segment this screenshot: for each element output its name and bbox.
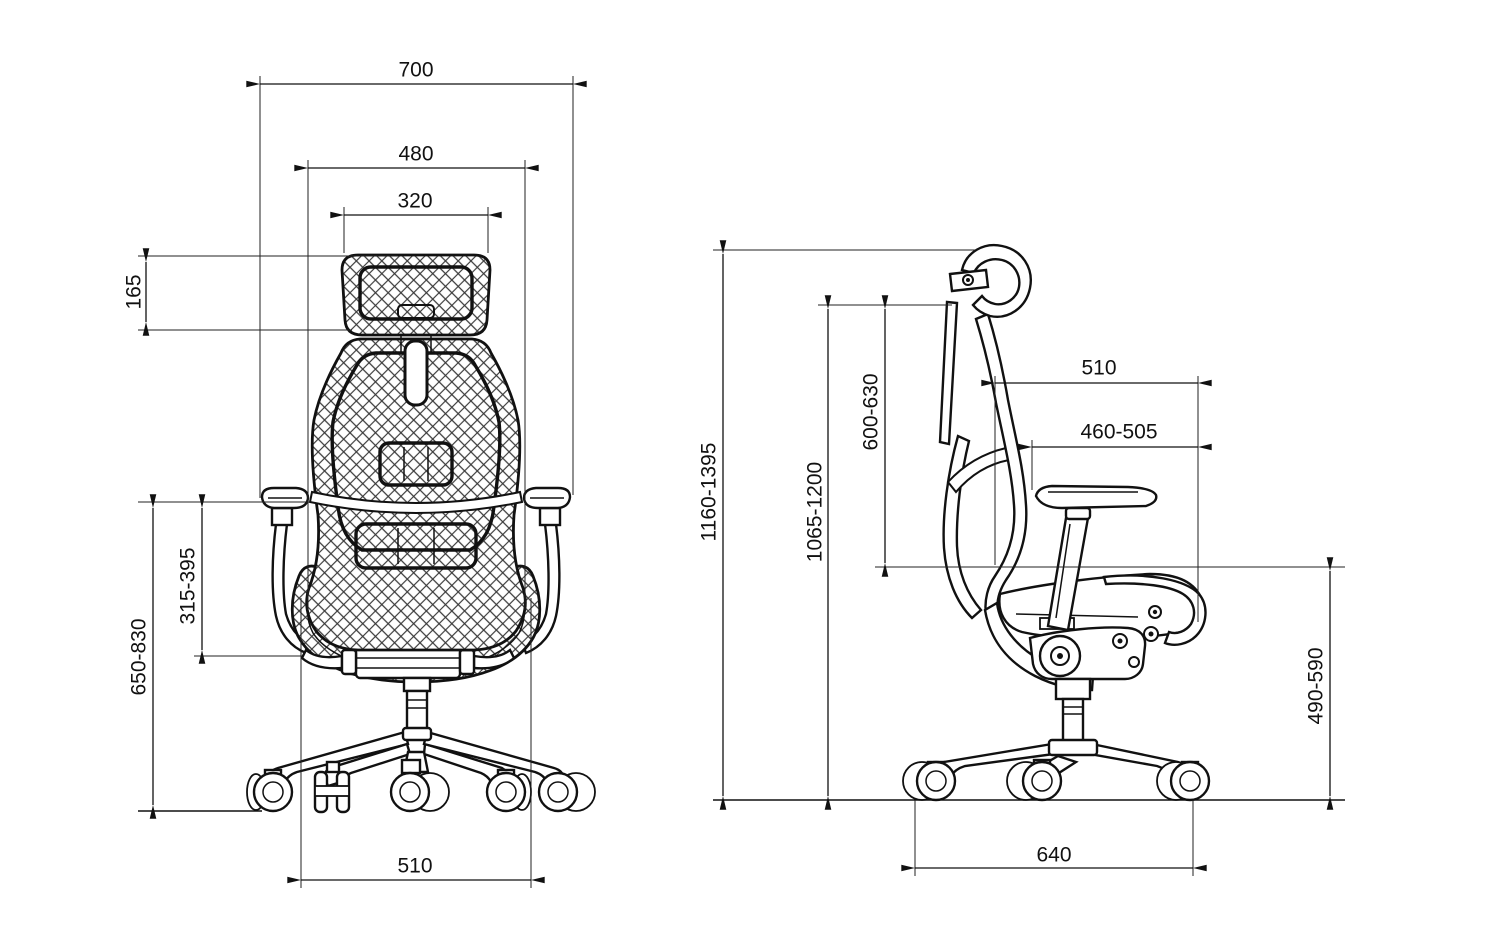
caster [487,770,531,811]
dim-seat-height-label: 490-590 [1306,644,1327,727]
dim-armrest-seat-label: 315-395 [178,544,199,627]
caster [903,762,955,800]
dim-460-505 [1032,440,1198,490]
dim-headrest-width-label: 320 [394,191,435,212]
side-view-drawing [903,245,1209,800]
back-view-drawing [247,255,595,812]
chair-dimension-drawing: 700 480 320 165 315-395 650-830 510 1160… [0,0,1500,938]
dim-backrest-width-label: 480 [395,144,436,165]
dim-320 [344,207,488,253]
dim-seat-depth-label: 460-505 [1077,422,1160,443]
dim-backrest-top-height-label: 1065-1200 [805,459,826,565]
chair-drawing-svg [0,0,1500,938]
dim-backrest-length-label: 600-630 [861,370,882,453]
gas-lift-side [1056,679,1090,741]
base-back-view [247,728,595,812]
caster [1157,762,1209,800]
dim-armrest-floor-label: 650-830 [129,615,150,698]
headrest-back-view [342,255,490,352]
tilt-mechanism [1030,627,1145,679]
dim-overall-width-label: 700 [395,60,436,81]
base-side-view [903,740,1209,800]
caster [391,760,449,811]
dim-headrest-height-label: 165 [124,271,145,312]
gas-column-back-view [404,678,430,731]
dim-overall-height-label: 1160-1395 [699,440,720,545]
dim-base-depth-label: 640 [1033,845,1074,866]
headrest-stem [940,302,957,444]
dim-depth-total-label: 510 [1078,358,1119,379]
caster [247,770,292,811]
dim-base-width-label: 510 [394,856,435,877]
caster [539,773,595,811]
dim-650-830 [138,508,262,811]
backrest-back-view [307,339,526,650]
headrest-side [950,245,1031,317]
caster [1007,760,1061,800]
